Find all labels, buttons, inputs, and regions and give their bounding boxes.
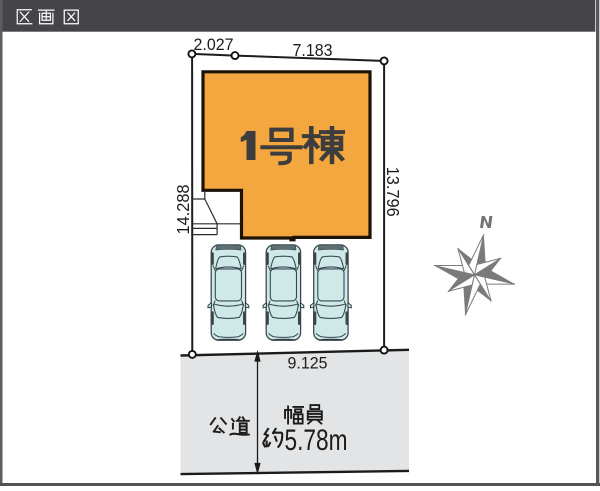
svg-text:13.796: 13.796 bbox=[383, 167, 403, 217]
svg-text:14.288: 14.288 bbox=[173, 185, 193, 235]
svg-text:5.78m: 5.78m bbox=[285, 424, 348, 457]
svg-text:7.183: 7.183 bbox=[293, 40, 333, 60]
svg-text:2.027: 2.027 bbox=[194, 35, 234, 54]
svg-text:9.125: 9.125 bbox=[288, 354, 328, 373]
